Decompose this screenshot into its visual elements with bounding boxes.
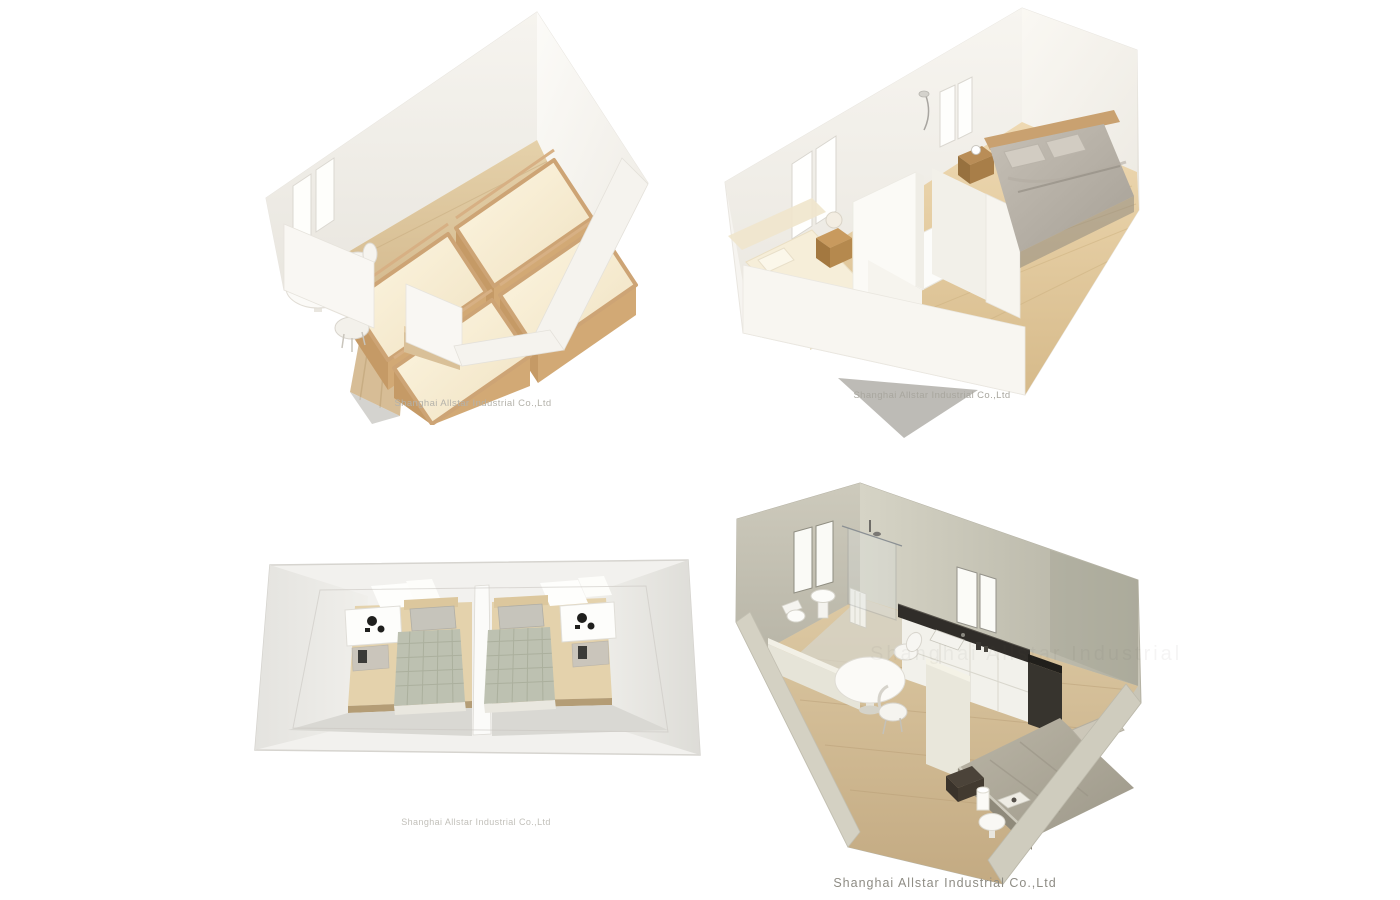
watermark-caption: Shanghai Allstar Industrial Co.,Ltd: [853, 390, 1010, 401]
watermark-caption: Shanghai Allstar Industrial Co.,Ltd: [394, 398, 551, 409]
shelf-item: [578, 646, 587, 659]
wall-cabinet: [345, 606, 402, 646]
pillow: [498, 604, 544, 629]
render-studio-unit: Shanghai Allstar Industrial Co.,Ltd: [730, 470, 1180, 900]
chair: [879, 703, 907, 721]
faucet: [961, 633, 965, 637]
partition-left-edge: [916, 172, 924, 290]
kitchen-window: [957, 567, 996, 633]
watermark-caption: Shanghai Allstar Industrial Co.,Ltd: [401, 817, 551, 827]
shelf: [572, 641, 609, 667]
wall-cabinet: [560, 602, 616, 642]
render-twin-rooms-top-view: [248, 548, 710, 783]
room-partition: [926, 658, 970, 782]
render-two-bedroom-unit: [718, 0, 1240, 445]
shelf-item: [358, 650, 367, 663]
alarm-clock: [972, 146, 981, 155]
watermark-caption: Shanghai Allstar Industrial Co.,Ltd: [833, 876, 1056, 890]
pillow: [410, 606, 456, 631]
open-door-shadow: [838, 378, 978, 438]
render-bunk-bed-dormitory: [254, 0, 674, 425]
shower-head: [919, 91, 929, 97]
product-render-collage: Shanghai Allstar Industrial Co.,Ltd Shan…: [0, 0, 1400, 900]
shelf: [352, 645, 389, 671]
ghost-watermark: Shanghai Allstar Industrial Co.,Ltd: [870, 643, 1180, 665]
bedside-table: [979, 814, 1005, 831]
shower-glass: [848, 528, 896, 620]
sink-basin: [811, 590, 835, 603]
table-lamp: [826, 212, 842, 228]
toilet-bowl: [787, 610, 805, 622]
table-base: [859, 706, 881, 715]
checkered-blanket: [484, 627, 555, 704]
checkered-blanket: [394, 629, 465, 706]
